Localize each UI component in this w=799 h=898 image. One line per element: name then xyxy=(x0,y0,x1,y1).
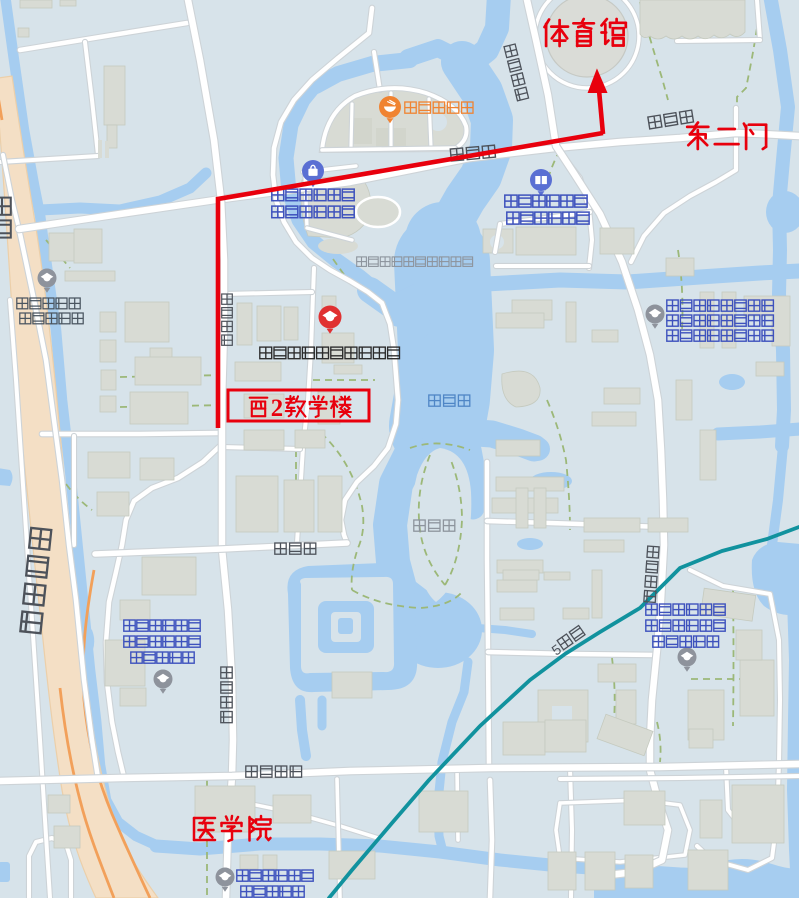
svg-text:2: 2 xyxy=(271,395,283,422)
